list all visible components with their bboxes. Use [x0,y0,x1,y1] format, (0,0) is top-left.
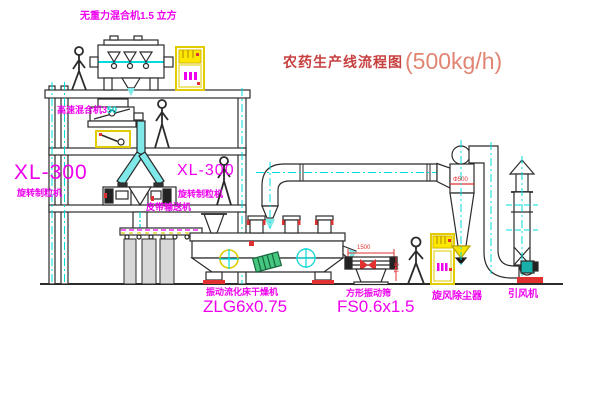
control-cabinet-1 [176,47,204,90]
belt-conveyor [120,212,202,284]
flow-diagram-canvas: 农药生产线流程图 (500kg/h) 无重力混合机1.5 立方 高速混合机350… [0,0,600,403]
dimension-cyclone-diameter: Φ500 [453,177,468,183]
chute-box [96,131,130,147]
gravity-free-mixer [90,36,173,96]
label-high-speed-mixer: 高速混合机350 [57,106,117,115]
roof-slab [45,90,250,98]
label-fan: 引风机 [508,290,538,300]
induced-draft-fan [517,261,543,283]
label-gravity-mixer: 无重力混合机1.5 立方 [80,12,177,22]
dimension-screen-height: 541 [392,263,398,273]
label-cyclone: 旋风除尘器 [432,292,482,302]
diagram-title: 农药生产线流程图 (500kg/h) [283,48,502,75]
dimension-screen-length: 1500 [357,245,370,251]
label-dryer-name: 振动流化床干燥机 [206,288,278,297]
worker-figure-roof [72,47,86,90]
label-granulator-right-name: 旋转制粒机 [178,190,223,199]
label-high-speed-mixer-capacity: 50 [107,105,117,115]
label-screen-model: FS0.6x1.5 [337,298,415,315]
label-high-speed-mixer-text: 高速混合机3 [57,105,107,115]
worker-figure-floor2 [155,100,169,148]
worker-figure-ground [408,238,424,285]
outlet-pipe [469,142,519,278]
title-text: 农药生产线流程图 [283,52,403,72]
control-cabinet-2 [431,234,454,284]
floor2-slab [49,148,246,155]
label-granulator-left-model: XL-300 [14,162,88,183]
label-dryer-model: ZLG6x0.75 [203,298,287,315]
label-granulator-left-name: 旋转制粒机 [17,189,62,198]
label-granulator-right-model: XL-300 [177,163,235,179]
fluid-bed-dryer [190,214,357,284]
label-belt-conveyor: 皮带输送机 [146,203,191,212]
title-capacity: (500kg/h) [405,48,502,75]
